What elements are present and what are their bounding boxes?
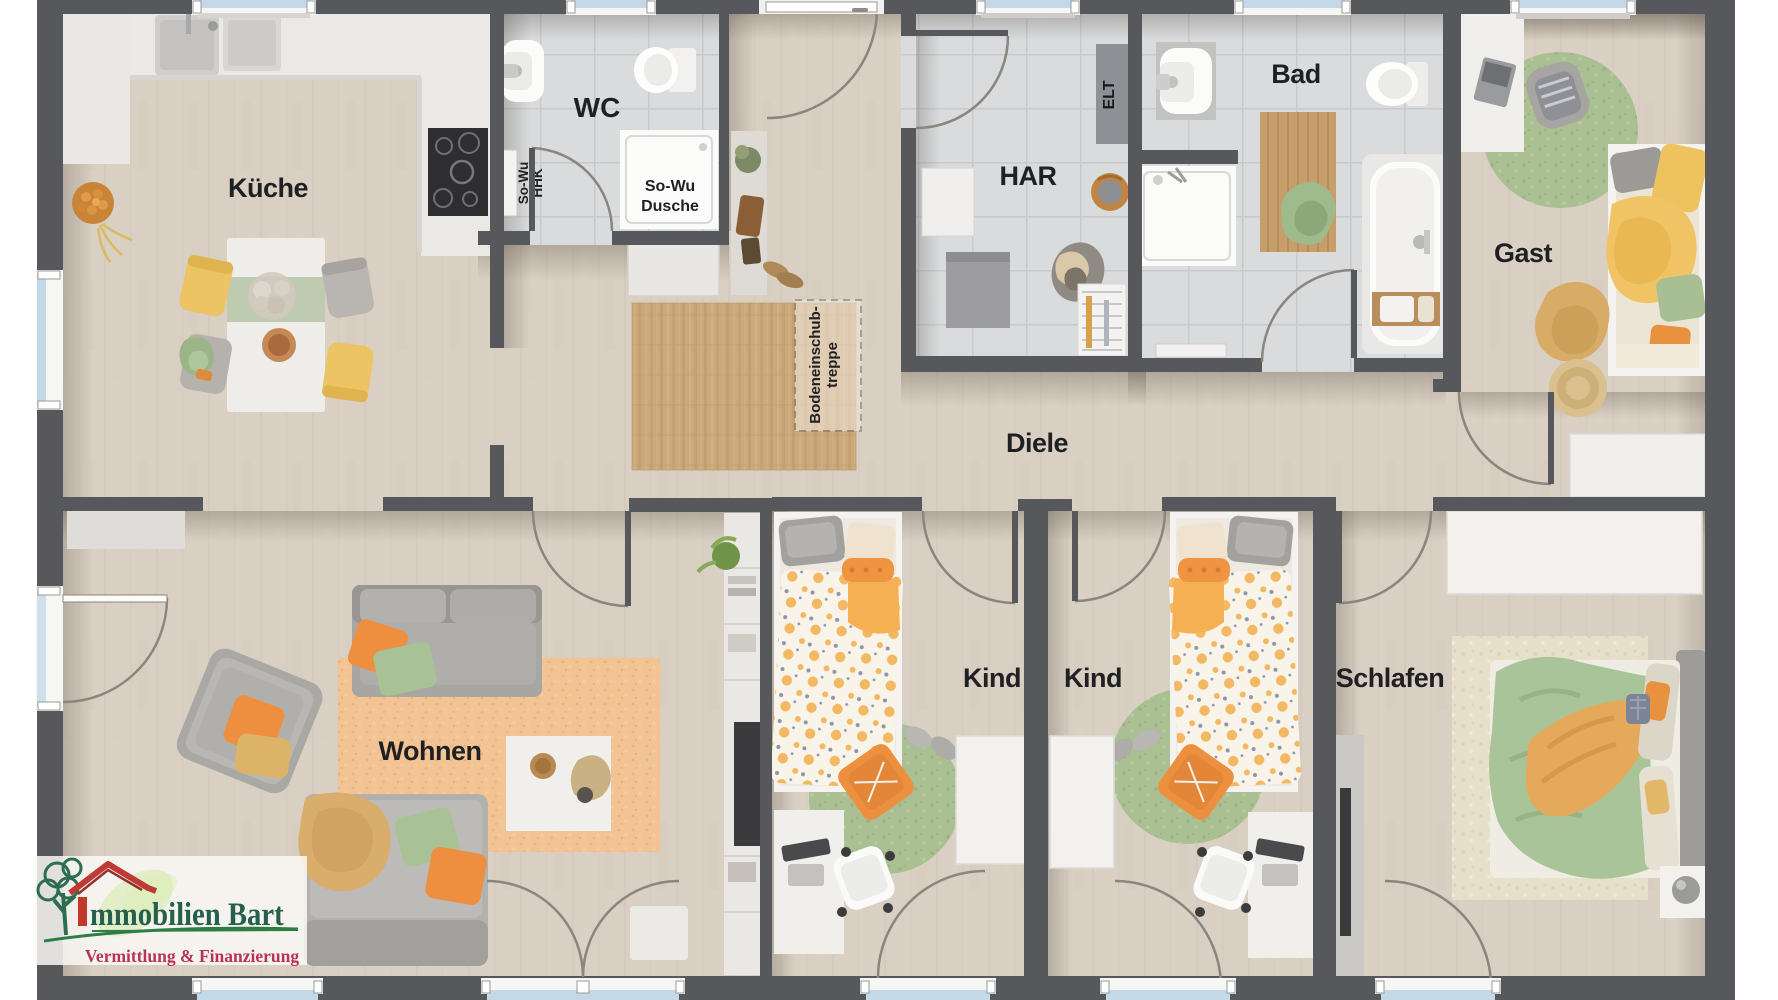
svg-text:WC: WC <box>574 92 621 123</box>
svg-text:HAR: HAR <box>1000 161 1057 191</box>
svg-text:Diele: Diele <box>1006 428 1069 458</box>
svg-text:Kind: Kind <box>963 663 1021 693</box>
svg-text:Wohnen: Wohnen <box>379 736 482 766</box>
svg-text:ELT: ELT <box>1101 80 1118 109</box>
svg-text:Schlafen: Schlafen <box>1336 663 1445 693</box>
svg-text:Küche: Küche <box>228 173 309 203</box>
svg-text:Bad: Bad <box>1271 59 1321 89</box>
svg-text:Kind: Kind <box>1064 663 1122 693</box>
svg-text:So-Wu: So-Wu <box>645 178 695 195</box>
svg-text:Gast: Gast <box>1494 238 1553 268</box>
svg-text:Vermittlung & Finanzierung: Vermittlung & Finanzierung <box>85 946 299 966</box>
svg-text:Dusche: Dusche <box>641 198 699 215</box>
